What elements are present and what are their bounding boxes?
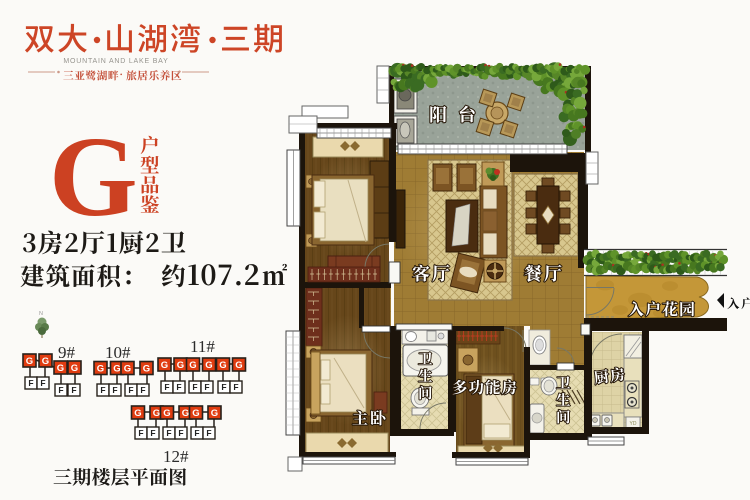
svg-text:F: F [112, 385, 117, 395]
svg-text:10#: 10# [105, 343, 131, 362]
svg-text:F: F [164, 382, 169, 392]
svg-text:G: G [192, 408, 199, 419]
svg-text:MOUNTAIN AND LAKE BAY: MOUNTAIN AND LAKE BAY [63, 58, 168, 65]
svg-text:G: G [49, 113, 138, 240]
svg-text:F: F [178, 428, 183, 438]
svg-text:F: F [194, 428, 199, 438]
svg-text:F: F [204, 382, 209, 392]
svg-text:G: G [134, 408, 141, 419]
svg-text:F: F [192, 382, 197, 392]
svg-text:G: G [26, 356, 33, 367]
svg-text:F: F [166, 428, 171, 438]
svg-text:F: F [40, 378, 45, 388]
svg-text:G: G [97, 363, 104, 374]
svg-text:F: F [28, 378, 33, 388]
svg-text:F: F [233, 382, 238, 392]
svg-text:G: G [124, 363, 131, 374]
svg-text:G: G [71, 363, 78, 374]
svg-text:G: G [205, 360, 212, 371]
svg-text:G: G [219, 360, 226, 371]
svg-text:G: G [161, 360, 168, 371]
svg-text:11#: 11# [190, 337, 215, 356]
svg-text:F: F [221, 382, 226, 392]
svg-text:12#: 12# [163, 447, 189, 466]
svg-text:G: G [189, 360, 196, 371]
svg-text:G: G [163, 408, 170, 419]
svg-text:G: G [182, 408, 189, 419]
svg-text:G: G [177, 360, 184, 371]
svg-text:G: G [153, 408, 160, 419]
svg-text:F: F [58, 385, 63, 395]
svg-text:F: F [71, 385, 76, 395]
svg-text:F: F [128, 385, 133, 395]
svg-text:YD: YD [630, 421, 637, 427]
svg-text:G: G [113, 363, 120, 374]
svg-text:9#: 9# [58, 343, 76, 362]
svg-text:G: G [235, 360, 242, 371]
svg-text:F: F [140, 385, 145, 395]
svg-text:G: G [42, 356, 49, 367]
svg-text:F: F [206, 428, 211, 438]
svg-text:N: N [39, 311, 43, 317]
svg-text:F: F [100, 385, 105, 395]
svg-text:G: G [143, 363, 150, 374]
svg-text:G: G [57, 363, 64, 374]
svg-text:G: G [211, 408, 218, 419]
svg-text:F: F [150, 428, 155, 438]
svg-text:F: F [138, 428, 143, 438]
svg-text:F: F [176, 382, 181, 392]
